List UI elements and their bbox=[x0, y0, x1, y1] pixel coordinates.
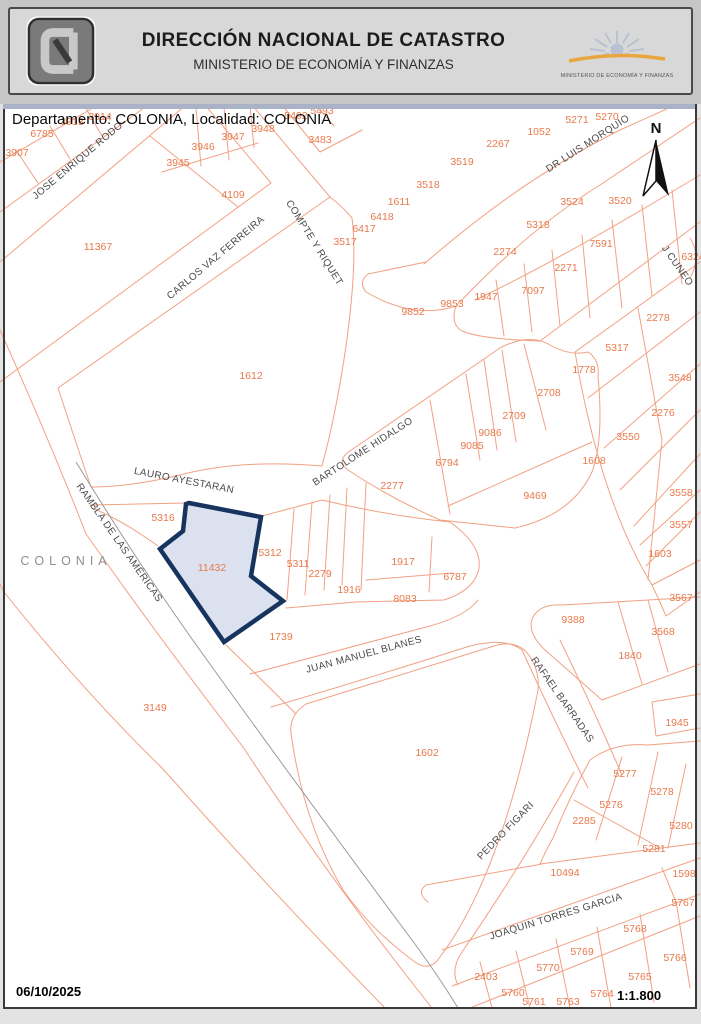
street-label-bartolome-hidalgo: BARTOLOME HIDALGO bbox=[311, 416, 415, 489]
street-label-joaquin-torres-garcia: JOAQUIN TORRES GARCIA bbox=[488, 892, 623, 943]
mef-sun-logo-icon: MINISTERIO DE ECONOMÍA Y FINANZAS bbox=[553, 23, 681, 79]
page-title: DIRECCIÓN NACIONAL DE CATASTRO bbox=[98, 30, 549, 52]
header: DIRECCIÓN NACIONAL DE CATASTRO MINISTERI… bbox=[0, 0, 701, 104]
page-subtitle: MINISTERIO DE ECONOMÍA Y FINANZAS bbox=[98, 57, 549, 72]
map-scale: 1:1.800 bbox=[617, 988, 661, 1003]
street-label-pedro-figari: PEDRO FIGARI bbox=[475, 800, 536, 863]
street-label-j-cuneo: J CUNEO bbox=[659, 244, 695, 289]
street-labels-layer: JOSE ENRIQUE RODOCARLOS VAZ FERREIRACOMP… bbox=[0, 0, 701, 1024]
street-label-carlos-vaz-ferreira: CARLOS VAZ FERREIRA bbox=[165, 214, 267, 302]
mef-logo-caption: MINISTERIO DE ECONOMÍA Y FINANZAS bbox=[553, 73, 681, 79]
header-titles: DIRECCIÓN NACIONAL DE CATASTRO MINISTERI… bbox=[98, 30, 553, 72]
map-caption: Departamento: COLONIA, Localidad: COLONI… bbox=[12, 111, 331, 128]
street-label-compte-y-riquet: COMPTE Y RIQUET bbox=[283, 198, 344, 287]
street-label-dr-luis-morquio: DR LUIS MORQUIO bbox=[544, 113, 631, 175]
street-label-lauro-ayestaran: LAURO AYESTARAN bbox=[133, 466, 235, 496]
street-label-rafael-barradas: RAFAEL BARRADAS bbox=[528, 655, 595, 745]
map-top-strip bbox=[3, 104, 695, 109]
map-date: 06/10/2025 bbox=[16, 984, 81, 999]
street-label-jose-enrique-rodo: JOSE ENRIQUE RODO bbox=[31, 120, 125, 202]
dnc-catastro-logo-icon bbox=[24, 14, 98, 88]
header-box: DIRECCIÓN NACIONAL DE CATASTRO MINISTERI… bbox=[8, 7, 693, 95]
street-label-rambla-de-las-américas: RAMBLA DE LAS AMÉRICAS bbox=[74, 482, 165, 605]
street-label-juan-manuel-blanes: JUAN MANUEL BLANES bbox=[305, 634, 423, 676]
